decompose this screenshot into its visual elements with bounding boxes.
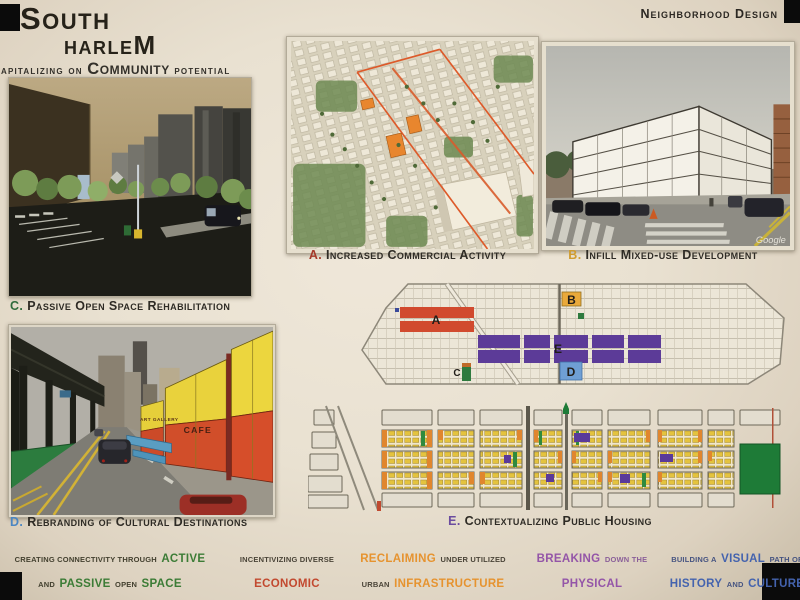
caption-c-text: Passive Open Space Rehabilitation <box>27 299 230 313</box>
photo-corner-top-right <box>784 0 800 23</box>
cafe-sign: CAFE <box>184 425 212 435</box>
crosswalk-right <box>645 223 730 244</box>
statement-5-small-3: AND <box>727 580 744 589</box>
statement-infrastructure: RECLAIMING UNDER UTILIZED URBAN INFRASTR… <box>356 546 510 596</box>
key-label-c: C <box>453 368 460 379</box>
statement-3-small-1: UNDER UTILIZED <box>440 555 505 564</box>
statement-2-small-1: INCENTIVIZING DIVERSE <box>240 555 334 564</box>
key-label-b: B <box>567 293 576 307</box>
zone-c-marker <box>462 367 471 381</box>
statement-4-big-1: BREAKING <box>537 553 601 565</box>
caption-a: A. Increased Commercial Activity <box>286 248 529 262</box>
statement-5-big-3: CULTURE <box>748 578 800 590</box>
key-plan-illustration: A B C D E <box>350 278 790 402</box>
caption-c: C. Passive Open Space Rehabilitation <box>10 299 230 313</box>
statement-1-big-1: ACTIVE <box>161 553 205 565</box>
avenue-1 <box>526 406 530 510</box>
key-label-d: D <box>567 365 576 379</box>
statement-5-big-2: HISTORY <box>670 578 723 590</box>
panel-divider <box>226 354 231 481</box>
statement-1-small-3: OPEN <box>115 580 137 589</box>
infill-development-image: Google <box>541 41 795 251</box>
title-line-2: harleM <box>64 32 157 58</box>
subtitle-part-1: capitalizing on <box>0 63 83 77</box>
statement-3-small-2: URBAN <box>362 580 390 589</box>
presentation-board: South harleM capitalizing on Community p… <box>0 0 800 600</box>
statement-economic: INCENTIVIZING DIVERSE ECONOMIC DEVELOPME… <box>208 546 366 600</box>
housing-plan-illustration <box>308 402 790 514</box>
key-plan-map: A B C D E <box>350 278 790 402</box>
photo-corner-top-left <box>0 4 20 31</box>
aerial-illustration <box>291 41 534 249</box>
statement-5-small-2: PATH OF <box>770 555 800 564</box>
statement-1-small-2: AND <box>38 580 55 589</box>
public-housing-plan-map <box>308 402 790 514</box>
key-label-e: E <box>554 342 562 356</box>
statement-1-big-3: SPACE <box>142 578 182 590</box>
car <box>98 439 130 464</box>
statement-1-big-2: PASSIVE <box>59 578 110 590</box>
subtitle-part-3: potential <box>174 63 230 77</box>
caption-d-letter: D. <box>10 515 23 529</box>
infill-illustration: Google <box>546 46 790 246</box>
art-gallery-sign: ART GALLERY <box>140 417 179 422</box>
caption-e-text: Contextualizing Public Housing <box>465 514 652 528</box>
render-open-space-image <box>8 77 252 297</box>
avenue-2 <box>565 406 568 510</box>
caption-b: B. Infill Mixed-use Development <box>536 248 790 262</box>
aerial-commercial-image <box>286 36 539 254</box>
statement-3-big-2: INFRASTRUCTURE <box>394 578 504 590</box>
cultural-destinations-image: ART GALLERY CAFE <box>8 324 276 518</box>
park-square <box>740 444 780 494</box>
statement-2-big-1: ECONOMIC DEVELOPMENT <box>242 578 333 600</box>
caption-b-letter: B. <box>568 248 581 262</box>
caption-c-letter: C. <box>10 299 23 313</box>
caption-d-text: Rebranding of Cultural Destinations <box>27 515 247 529</box>
statement-history-culture: BUILDING A VISUAL PATH OF HISTORY AND CU… <box>664 546 800 596</box>
statement-1-small-1: CREATING CONNECTIVITY THROUGH <box>15 555 157 564</box>
subtitle-part-2: Community <box>87 60 170 78</box>
neighborhood-design-label: Neighborhood Design <box>640 7 778 21</box>
caption-a-letter: A. <box>309 248 322 262</box>
statement-open-space: CREATING CONNECTIVITY THROUGH ACTIVE AND… <box>10 546 210 596</box>
statement-4-small-1: DOWN THE <box>605 555 647 564</box>
caption-a-text: Increased Commercial Activity <box>326 248 506 262</box>
caption-e-letter: E. <box>448 514 461 528</box>
caption-b-text: Infill Mixed-use Development <box>585 248 757 262</box>
van <box>205 205 241 226</box>
open-space-illustration <box>9 78 251 296</box>
cultural-illustration: ART GALLERY CAFE <box>11 327 273 515</box>
hydrant <box>709 198 713 206</box>
statement-4-big-2: PHYSICAL <box>562 578 623 590</box>
statement-barriers: BREAKING DOWN THE PHYSICAL BARRIERS THAT… <box>506 546 678 600</box>
red-car <box>180 495 247 515</box>
key-label-a: A <box>432 313 441 327</box>
panels-near <box>231 331 273 482</box>
board-title: South harleM <box>20 3 157 58</box>
statement-5-small-1: BUILDING A <box>671 555 716 564</box>
caption-d: D. Rebranding of Cultural Destinations <box>10 515 247 529</box>
statement-3-big-1: RECLAIMING <box>360 553 436 565</box>
statement-5-big-1: VISUAL <box>721 553 765 565</box>
caption-e: E. Contextualizing Public Housing <box>310 514 790 528</box>
google-watermark: Google <box>756 235 786 245</box>
